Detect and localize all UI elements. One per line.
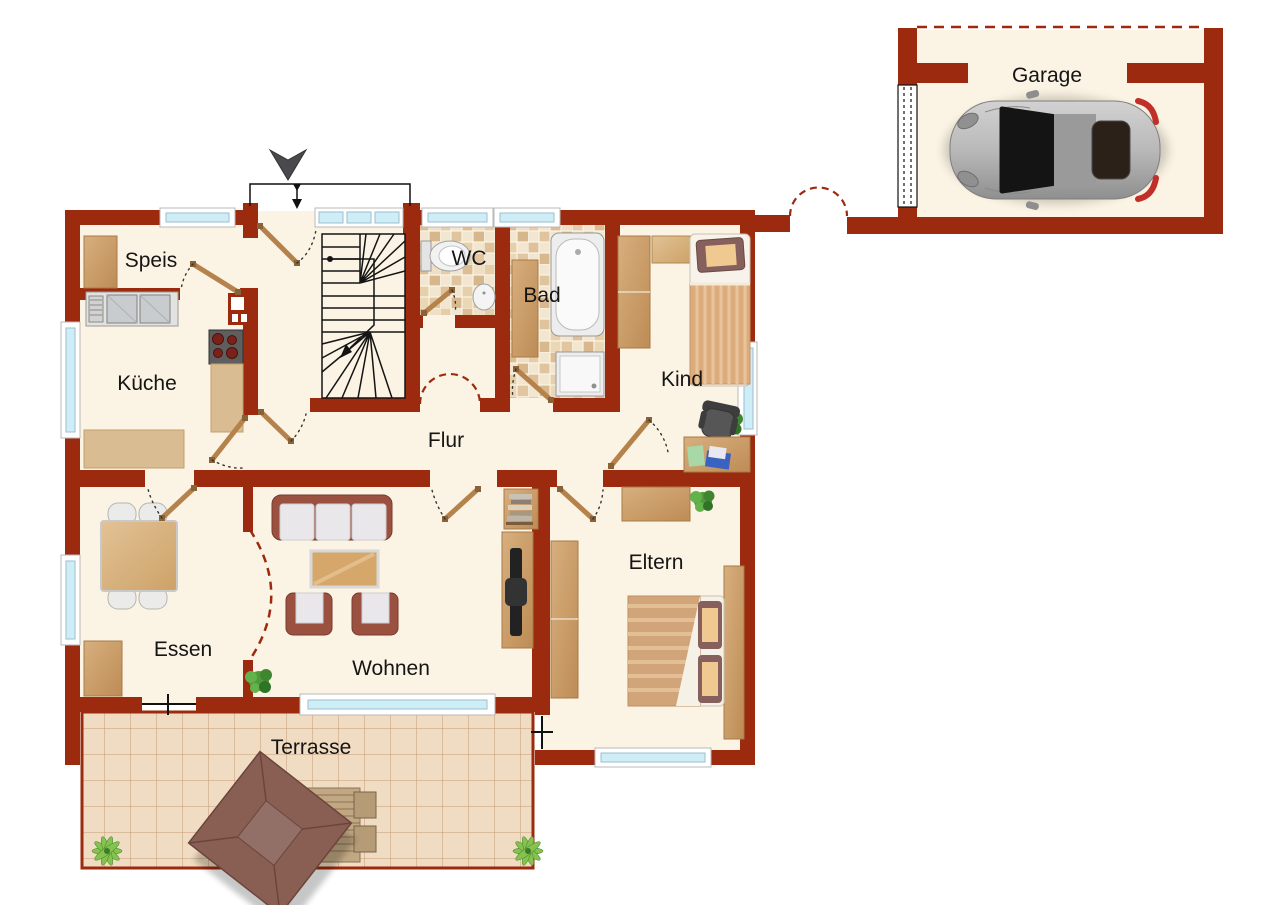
eltern-bed (628, 596, 724, 706)
wall (196, 697, 303, 712)
pantry-shelf (84, 236, 117, 288)
floorplan-canvas: Speis Küche WC Bad Kind Flur Essen Wohne… (0, 0, 1280, 905)
wall (1127, 63, 1204, 83)
wall (480, 398, 510, 412)
room-label-kind: Kind (661, 368, 703, 391)
wall-entrance-pillar (243, 203, 258, 238)
wall (65, 225, 80, 325)
wall (557, 210, 755, 225)
window-wohnen (300, 694, 495, 715)
wall (535, 697, 550, 715)
sideboard (84, 641, 122, 696)
shower-icon (556, 352, 604, 396)
wall (1204, 28, 1223, 234)
window-speis (160, 208, 235, 227)
room-label-speis: Speis (125, 249, 178, 272)
armchair (352, 593, 398, 635)
wall (65, 697, 142, 712)
eltern-headboard-unit (724, 566, 744, 739)
room-label-wc: WC (452, 247, 487, 270)
window-entrance-sidelights (315, 208, 403, 227)
wall (65, 435, 80, 558)
stove (209, 330, 243, 364)
window-kueche (61, 322, 80, 438)
room-label-terrasse: Terrasse (271, 736, 352, 759)
wall (898, 28, 917, 85)
wall (603, 470, 755, 487)
car-icon (944, 89, 1168, 210)
staircase (322, 234, 405, 398)
terrace-chair (354, 826, 376, 852)
wall (65, 712, 80, 765)
wall (497, 470, 557, 487)
room-label-wohnen: Wohnen (352, 657, 430, 680)
wall (310, 398, 420, 412)
kitchen-sink (86, 292, 178, 326)
room-label-garage: Garage (1012, 64, 1082, 87)
wall (535, 750, 598, 765)
room-label-essen: Essen (154, 638, 212, 661)
dining-table (101, 521, 177, 591)
wall (405, 210, 420, 412)
room-label-kueche: Küche (117, 372, 177, 395)
tv-board (502, 532, 533, 648)
wall (495, 225, 510, 398)
armchair (286, 593, 332, 635)
wall (194, 470, 430, 487)
wall (65, 470, 145, 487)
room-label-eltern: Eltern (629, 551, 684, 574)
eltern-dresser (622, 487, 690, 521)
wc-sink-icon (473, 284, 495, 310)
wall-stub (243, 487, 253, 532)
wall (455, 315, 495, 328)
bath-cabinet (512, 260, 538, 357)
window-wc (422, 208, 493, 227)
bookshelf (504, 489, 538, 529)
kind-desk (684, 437, 750, 472)
window-essen (61, 555, 80, 645)
room-label-bad: Bad (523, 284, 560, 307)
window-eltern (595, 748, 711, 767)
window-bad (494, 208, 560, 227)
wall (917, 63, 968, 83)
wall (405, 315, 423, 328)
entrance-floor (258, 211, 320, 225)
wall (755, 215, 790, 232)
terrace-chair (354, 792, 376, 818)
kind-shelf (652, 236, 690, 263)
sofa (272, 495, 392, 540)
room-label-flur: Flur (428, 429, 464, 452)
wall (65, 210, 163, 225)
kitchen-counter (211, 364, 243, 432)
kind-bed (690, 234, 750, 386)
kitchen-counter (84, 430, 184, 468)
garage-door-icon (898, 85, 917, 207)
coffee-table (311, 551, 378, 587)
